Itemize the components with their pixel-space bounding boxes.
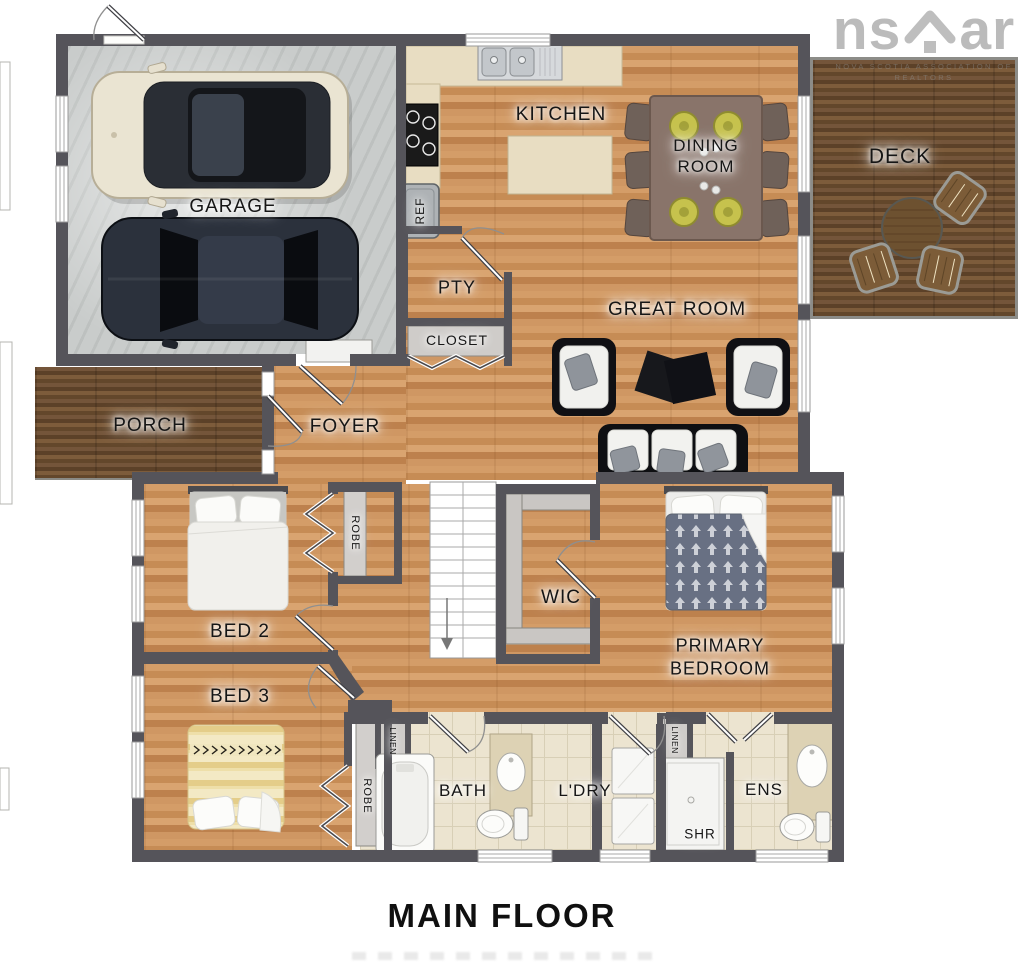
watermark-prefix: ns: [833, 2, 902, 59]
label-dining-line2: ROOM: [678, 157, 735, 176]
label-bed3: BED 3: [210, 686, 270, 708]
garage-window: [56, 96, 68, 152]
ens-window: [756, 850, 828, 862]
ens-doors: [708, 714, 772, 742]
label-garage: GARAGE: [189, 196, 276, 218]
watermark-subtext-2: REALTORS: [830, 72, 1018, 83]
washer-dryer: [612, 748, 654, 844]
laundry-window: [600, 850, 650, 862]
suv-car: [92, 62, 352, 208]
label-primary-bedroom: PRIMARY BEDROOM: [670, 635, 770, 680]
label-deck: DECK: [869, 145, 931, 169]
label-laundry: L'DRY: [558, 781, 611, 801]
ens-vanity-sink: [788, 722, 836, 820]
primary-window: [832, 588, 844, 644]
wic-shelves: [506, 494, 592, 644]
deck-furniture: [848, 169, 988, 294]
kitchen-window: [466, 34, 550, 46]
greatroom-window: [798, 320, 810, 412]
label-shower: SHR: [684, 827, 716, 842]
floor-plan-page: GARAGE KITCHEN DINING ROOM DECK GREAT RO…: [0, 0, 1022, 972]
kitchen-sink: [478, 44, 562, 80]
house-icon: [903, 3, 957, 59]
bath-window: [478, 850, 552, 862]
label-closet: CLOSET: [426, 332, 488, 348]
garage-entry-door: [300, 366, 356, 404]
front-door-sidelite: [262, 372, 274, 396]
stove-cooktop: [404, 104, 438, 166]
exterior-step-marks: [0, 62, 12, 810]
coffee-tables: [635, 351, 717, 405]
label-linen-bath: LINEN: [388, 727, 398, 755]
kitchen-island: [508, 136, 612, 194]
label-robe-bed3: ROBE: [361, 778, 373, 813]
label-bath: BATH: [439, 781, 487, 801]
front-door-sidelite: [262, 450, 274, 474]
label-dining-line1: DINING: [673, 136, 739, 155]
bed2-window: [132, 500, 144, 556]
robe-bed3-bifold: [322, 766, 348, 846]
pantry-door: [462, 228, 504, 280]
robe-bed2-bifold: [306, 494, 333, 572]
greatroom-furniture: [552, 338, 790, 482]
label-robe-bed2: ROBE: [349, 515, 361, 550]
armchair-right: [726, 338, 790, 416]
staircase: [430, 482, 496, 658]
garage-window: [56, 166, 68, 222]
label-primary-line1: PRIMARY: [676, 636, 765, 656]
watermark-subtext-1: NOVA SCOTIA ASSOCIATION OF: [830, 61, 1018, 72]
bed3-furniture: [188, 725, 284, 832]
label-pantry: PTY: [438, 278, 476, 299]
primary-bed-furniture: [664, 486, 768, 610]
label-foyer: FOYER: [310, 416, 380, 438]
label-great-room: GREAT ROOM: [608, 299, 746, 321]
label-porch: PORCH: [113, 415, 187, 437]
bath-toilet: [477, 808, 528, 840]
sedan-car: [102, 208, 358, 349]
label-ensuite: ENS: [745, 780, 783, 800]
deck-chair: [916, 245, 964, 294]
bed2-window: [132, 566, 144, 622]
bed2-furniture: [188, 486, 288, 610]
label-kitchen: KITCHEN: [516, 104, 606, 126]
label-dining-room: DINING ROOM: [673, 135, 739, 178]
bath-door: [430, 716, 485, 752]
watermark-suffix: ar: [959, 2, 1015, 59]
label-linen-ens: LINEN: [670, 726, 680, 754]
label-bed2: BED 2: [210, 621, 270, 643]
ens-toilet: [780, 812, 830, 842]
label-fridge: REF: [413, 198, 427, 225]
label-wic: WIC: [541, 587, 581, 609]
nsar-watermark: ns ar NOVA SCOTIA ASSOCIATION OF REALTOR…: [830, 2, 1018, 84]
foyer-closet-bifold: [408, 356, 504, 368]
deck-door-glass: [798, 96, 810, 192]
bed2-door: [296, 605, 333, 650]
deck-window: [798, 236, 810, 304]
bed3-window: [132, 742, 144, 798]
bed3-window: [132, 676, 144, 732]
primary-window: [832, 496, 844, 552]
label-primary-line2: BEDROOM: [670, 658, 770, 678]
armchair-left: [552, 338, 616, 416]
bath-vanity-sink: [490, 734, 532, 816]
